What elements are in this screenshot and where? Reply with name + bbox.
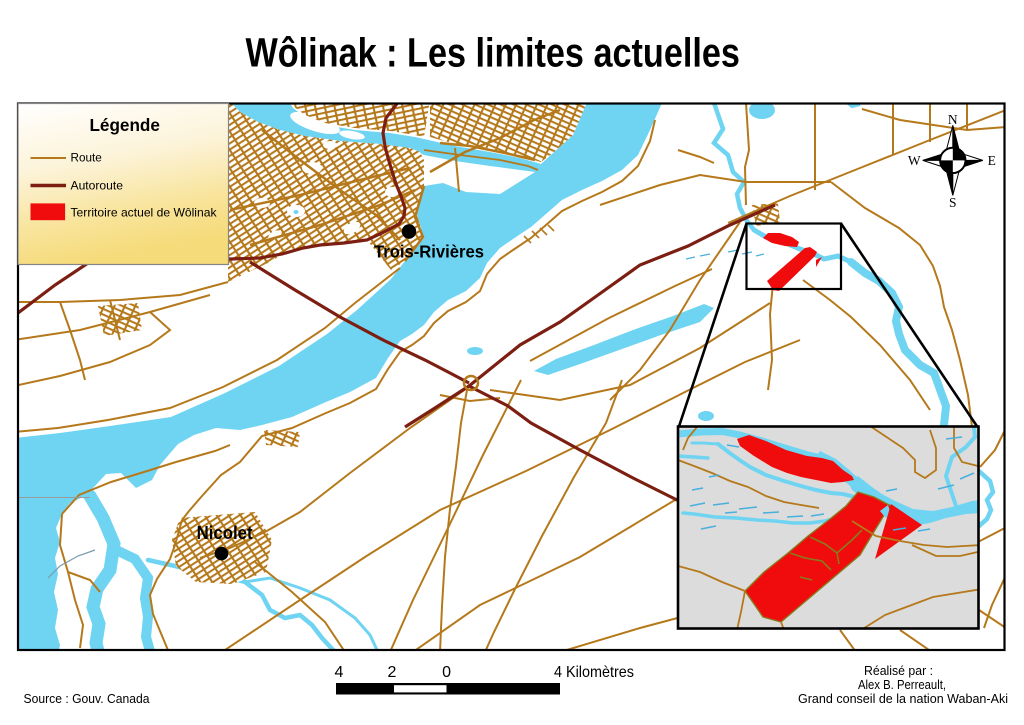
svg-text:N: N xyxy=(948,112,958,127)
svg-text:2: 2 xyxy=(388,664,397,681)
svg-text:Wôlinak : Les limites actuelle: Wôlinak : Les limites actuelles xyxy=(245,30,740,76)
svg-text:Autoroute: Autoroute xyxy=(71,178,124,192)
svg-text:Source : Gouv. Canada: Source : Gouv. Canada xyxy=(24,692,150,706)
svg-text:Alex B. Perreault,: Alex B. Perreault, xyxy=(858,678,946,692)
svg-text:W: W xyxy=(908,153,921,168)
svg-text:Réalisé par :: Réalisé par : xyxy=(864,664,933,678)
svg-text:4 Kilomètres: 4 Kilomètres xyxy=(554,664,634,681)
svg-text:S: S xyxy=(949,195,957,210)
svg-text:Route: Route xyxy=(71,151,103,165)
svg-text:Grand conseil de la nation Wab: Grand conseil de la nation Waban-Aki xyxy=(798,692,1008,706)
svg-text:Territoire actuel de Wôlinak: Territoire actuel de Wôlinak xyxy=(71,205,217,219)
svg-text:Trois-Rivières: Trois-Rivières xyxy=(374,242,484,262)
svg-text:E: E xyxy=(988,153,996,168)
svg-text:Nicolet: Nicolet xyxy=(197,523,253,543)
svg-text:4: 4 xyxy=(335,664,344,681)
svg-text:Légende: Légende xyxy=(89,115,160,135)
svg-text:0: 0 xyxy=(442,664,451,681)
